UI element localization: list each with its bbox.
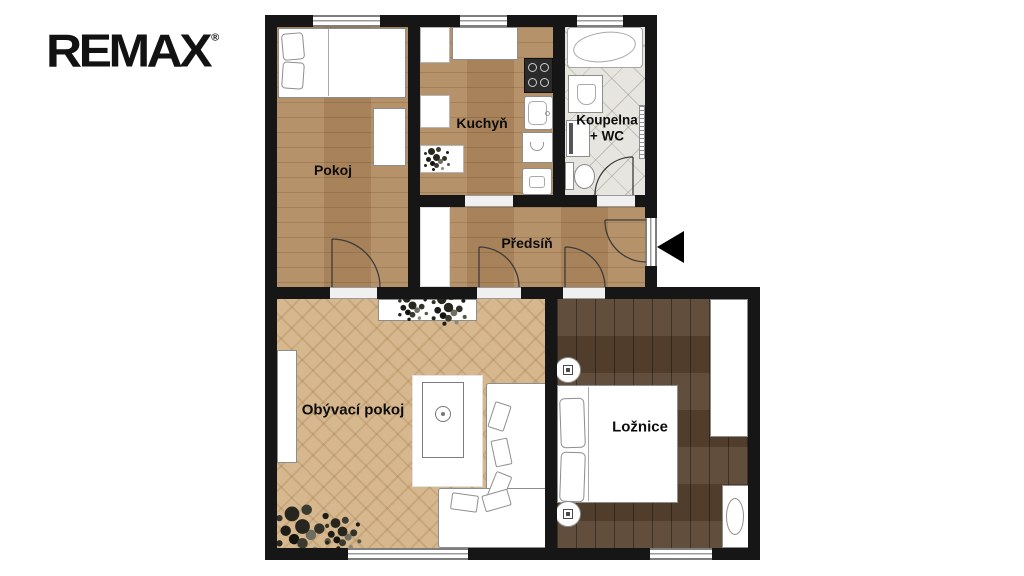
- sofa-cushion: [450, 492, 479, 513]
- wall: [565, 195, 597, 207]
- door-swing-pokoj: [330, 239, 380, 288]
- lamp-dot: [566, 368, 570, 372]
- floor-plant-icon: [295, 519, 310, 534]
- door-swing-bathroom: [595, 157, 635, 197]
- lamp-icon: [563, 509, 573, 519]
- nightstand: [555, 501, 581, 527]
- bathroom-sink: [568, 75, 603, 113]
- room-label-obyvaci-pokoj: Obývací pokoj: [302, 401, 405, 418]
- window: [348, 548, 468, 560]
- appliance-door-icon: [529, 176, 545, 188]
- living-room-sideboard: [378, 299, 477, 321]
- door-swing-bedroom: [563, 247, 605, 287]
- door-swing-living-room: [477, 247, 519, 287]
- kitchen-appliance: [522, 168, 552, 195]
- pokoj-wardrobe: [373, 108, 406, 166]
- toilet-bowl: [574, 164, 595, 189]
- dishwasher-glass-icon: [530, 142, 544, 151]
- dishwasher: [522, 132, 553, 163]
- pokoj-bed-pillow: [281, 61, 305, 89]
- kitchen-counter: [420, 95, 450, 128]
- potted-plant-icon: [408, 301, 416, 309]
- faucet-icon: [545, 111, 550, 116]
- registered-trademark-icon: ®: [211, 32, 219, 43]
- door-swing-entrance: [604, 219, 647, 263]
- potted-plant-icon: [444, 303, 453, 312]
- kitchen-counter: [420, 145, 464, 173]
- bathtub: [567, 27, 643, 68]
- bedroom-pillow: [559, 452, 586, 503]
- wall: [553, 15, 565, 207]
- stove-burner-icon: [528, 78, 537, 87]
- entrance-arrow-icon: [657, 231, 684, 263]
- bedroom-radiator: [722, 485, 749, 548]
- room-label-koupelna: Koupelna + WC: [576, 112, 638, 143]
- kitchen-counter: [420, 27, 450, 63]
- kitchen-counter: [452, 27, 518, 60]
- hallway-wardrobe: [420, 207, 450, 287]
- door-threshold: [330, 287, 377, 299]
- bedroom-pillow: [559, 398, 586, 449]
- pokoj-bed-pillow: [281, 32, 305, 61]
- bedroom-wardrobe: [710, 299, 748, 437]
- nightstand: [555, 357, 581, 383]
- living-room-shelf: [277, 350, 297, 463]
- stove-burner-icon: [540, 63, 549, 72]
- room-label-kuchyn: Kuchyň: [456, 115, 507, 131]
- kitchen-sink: [524, 96, 553, 130]
- room-label-koupelna-line2: + WC: [576, 128, 638, 144]
- wall: [408, 15, 420, 299]
- wall: [645, 15, 657, 218]
- wall: [545, 287, 557, 548]
- toilet-tank: [565, 162, 574, 190]
- window: [577, 15, 623, 27]
- wall: [513, 195, 565, 207]
- window: [313, 15, 380, 27]
- stove: [524, 58, 553, 93]
- passage-threshold: [465, 195, 513, 207]
- pokoj-bed-blanket-edge: [328, 29, 329, 96]
- wall: [265, 287, 330, 299]
- floor-plant-icon: [338, 527, 348, 537]
- table-decor-dot: [441, 412, 445, 416]
- wall: [748, 287, 760, 560]
- floor-plan: Pokoj Kuchyň Koupelna + WC Předsíň Obýva…: [265, 15, 760, 560]
- wall: [635, 195, 657, 207]
- room-label-pokoj: Pokoj: [314, 162, 352, 178]
- table-decor-bowl: [435, 406, 451, 422]
- door-threshold: [477, 287, 521, 299]
- room-label-loznice: Ložnice: [612, 418, 668, 435]
- radiator-curve: [726, 498, 744, 535]
- window: [650, 548, 712, 560]
- bathroom-sink-basin: [577, 84, 596, 105]
- remax-logo: REMAX®: [46, 24, 219, 77]
- wall: [408, 195, 465, 207]
- wall: [377, 287, 477, 299]
- room-label-koupelna-line1: Koupelna: [576, 112, 638, 128]
- lamp-icon: [563, 365, 573, 375]
- door-threshold: [563, 287, 605, 299]
- window: [460, 15, 507, 27]
- wall: [605, 287, 760, 299]
- bathtub-basin: [571, 28, 637, 65]
- potted-plant-icon: [433, 154, 440, 161]
- lamp-dot: [566, 512, 570, 516]
- remax-logo-text: REMAX: [46, 25, 209, 77]
- stove-burner-icon: [540, 78, 549, 87]
- stove-burner-icon: [528, 63, 537, 72]
- bedroom-blanket-edge: [588, 387, 589, 501]
- room-label-predsin: Předsíň: [501, 235, 552, 251]
- washing-machine-door-icon: [569, 123, 573, 154]
